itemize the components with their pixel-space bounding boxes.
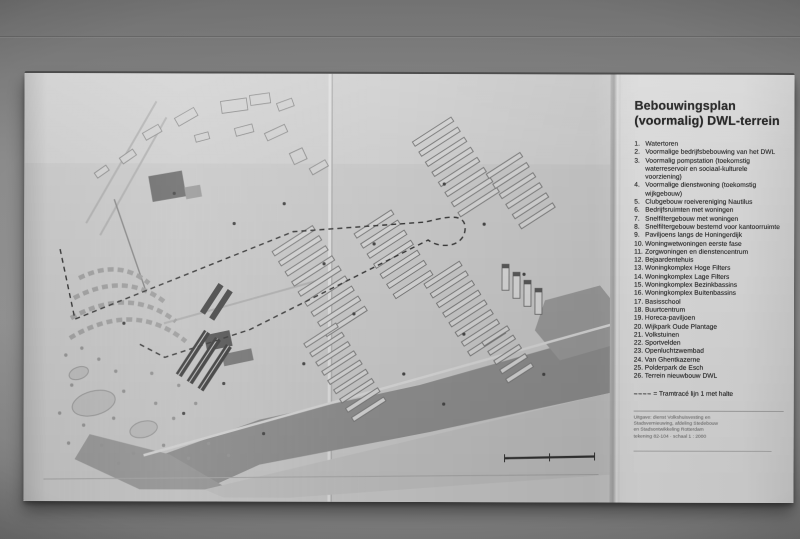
page-mark-rule [634,449,772,452]
route-note-text: = Tramtracé lijn 1 met halte [653,390,733,397]
legend-title-line2: (voormalig) DWL-terrein [634,114,784,129]
route-legend-note: – – – –= Tramtracé lijn 1 met halte [634,390,784,398]
legend-item: 4.Voormalige dienstwoning (toekomstig wi… [634,182,784,199]
site-plan-map [23,73,612,503]
plan-document: Bebouwingsplan (voormalig) DWL-terrein 1… [23,73,794,503]
legend-item: 26.Terrein nieuwbouw DWL [634,373,784,382]
legend-title: Bebouwingsplan (voormalig) DWL-terrein [634,99,784,129]
map-page [23,73,612,503]
legend-list: 1.Watertoren 2.Voormalige bedrijfsbebouw… [634,141,785,382]
legend-item: 3.Voormalig pompstation (toekomstig wate… [634,157,784,182]
legend-title-line1: Bebouwingsplan [634,99,784,114]
colophon-line: tekening 82-104 · schaal 1 : 2000 [634,434,784,441]
dashed-route-symbol: – – – – [634,390,651,397]
legend-page: Bebouwingsplan (voormalig) DWL-terrein 1… [619,75,794,503]
map-paper-top [24,73,612,165]
wall-seam-line [0,36,800,38]
colophon: Uitgave: dienst Volkshuisvesting en Stad… [634,410,784,441]
